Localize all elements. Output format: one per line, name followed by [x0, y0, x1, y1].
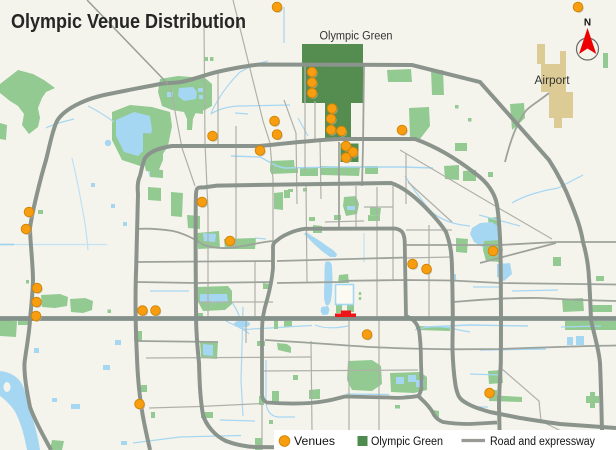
- svg-text:Road and expressway: Road and expressway: [490, 436, 595, 448]
- svg-text:Venues: Venues: [294, 436, 335, 448]
- svg-text:Olympic Green: Olympic Green: [371, 436, 443, 448]
- svg-text:Olympic Green: Olympic Green: [320, 31, 393, 43]
- svg-text:Olympic Venue Distribution: Olympic Venue Distribution: [11, 11, 246, 33]
- svg-text:N: N: [584, 18, 591, 29]
- svg-text:Airport: Airport: [535, 75, 571, 87]
